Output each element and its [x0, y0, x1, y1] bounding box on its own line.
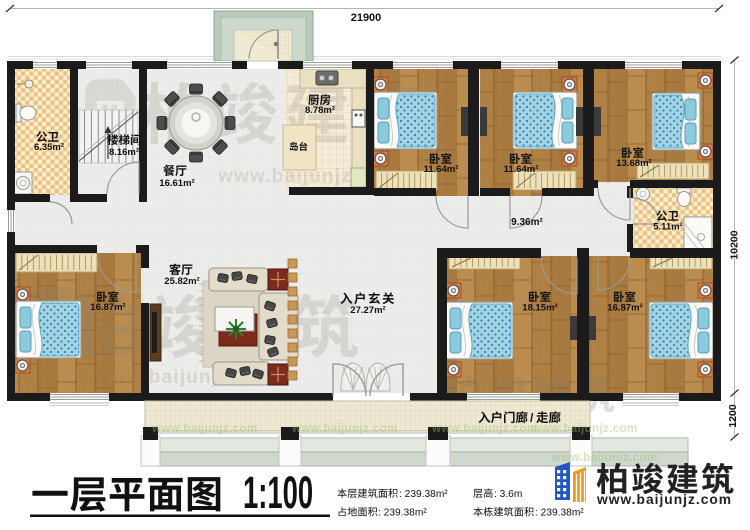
- svg-text:16.87m²: 16.87m²: [90, 302, 125, 313]
- svg-text:www.baijunjz.com: www.baijunjz.com: [431, 423, 538, 435]
- svg-text:www.baijunjz.com: www.baijunjz.com: [151, 423, 258, 435]
- svg-text:27.27m²: 27.27m²: [350, 305, 385, 316]
- svg-text:www.baijunjz.com: www.baijunjz.com: [291, 423, 398, 435]
- svg-text:8.16m²: 8.16m²: [109, 147, 139, 158]
- svg-text:www.baijunjz.com: www.baijunjz.com: [551, 452, 658, 464]
- svg-text:1:100: 1:100: [243, 467, 313, 518]
- svg-text:1200: 1200: [727, 404, 739, 428]
- svg-text:16.87m²: 16.87m²: [607, 303, 642, 314]
- svg-text:5.11m²: 5.11m²: [653, 222, 683, 233]
- svg-text:21900: 21900: [351, 12, 382, 24]
- svg-text:: 239.38m²: : 239.38m²: [399, 489, 448, 500]
- svg-text:10200: 10200: [729, 230, 741, 259]
- svg-text:6.35m²: 6.35m²: [34, 142, 64, 153]
- svg-text:16.61m²: 16.61m²: [159, 178, 194, 189]
- svg-text:: 239.38m²: : 239.38m²: [535, 508, 584, 519]
- svg-text:18.15m²: 18.15m²: [522, 303, 557, 314]
- svg-text:: 3.6m: : 3.6m: [494, 489, 522, 500]
- svg-text:www.baijunjz.com: www.baijunjz.com: [531, 423, 638, 435]
- svg-text:11.64m²: 11.64m²: [424, 164, 459, 175]
- svg-text:8.78m²: 8.78m²: [305, 105, 335, 116]
- svg-text:www.baijunjz.com: www.baijunjz.com: [596, 492, 732, 507]
- svg-text:: 239.38m²: : 239.38m²: [378, 508, 427, 519]
- svg-text:25.82m²: 25.82m²: [164, 276, 199, 287]
- svg-text:13.68m²: 13.68m²: [616, 158, 651, 169]
- svg-text:11.64m²: 11.64m²: [504, 164, 539, 175]
- svg-text:9.36m²: 9.36m²: [511, 217, 543, 228]
